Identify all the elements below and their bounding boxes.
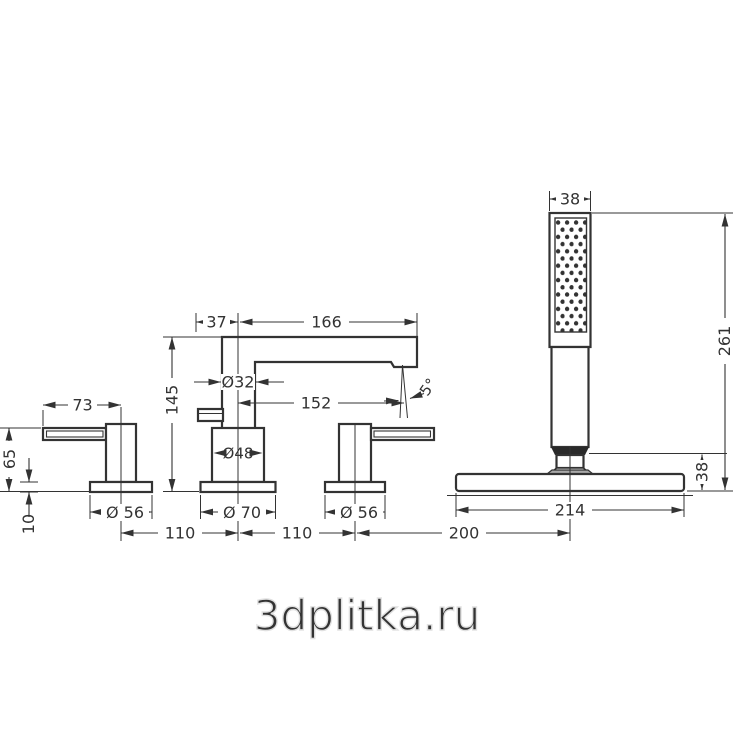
shower-handle	[552, 347, 589, 447]
bath-mixer-drawing: 73 65 10 Ø 56 37 166 Ø32 152 5° 145 Ø48 …	[0, 0, 734, 734]
watermark-text: 3dplitka.ru	[254, 591, 480, 640]
spout	[198, 337, 417, 492]
dim-label-spout-body-diameter: Ø48	[223, 444, 254, 462]
shower-spray-face	[555, 218, 587, 332]
right-handle	[325, 424, 434, 492]
dim-label-shower-head-width: 38	[560, 190, 580, 209]
dim-label-spacing-middle: 110	[282, 524, 313, 543]
dim-label-aerator-reach: 152	[301, 394, 332, 413]
dim-label-right-escutcheon-diameter: Ø 56	[340, 503, 378, 522]
spray-line-angled	[403, 365, 408, 418]
right-handle-lever-inner	[374, 431, 431, 437]
dim-label-left-escutcheon-diameter: Ø 56	[106, 503, 144, 522]
dim-label-spout-height: 145	[163, 385, 182, 416]
dim-label-spacing-left: 110	[165, 524, 196, 543]
dim-label-spout-back-offset: 37	[206, 313, 226, 332]
dim-label-spacing-shower: 200	[449, 524, 480, 543]
dim-label-escutcheon-height: 10	[19, 514, 38, 534]
dim-label-shower-total-height: 261	[715, 326, 734, 357]
dim-label-shower-holder-height: 38	[693, 462, 712, 482]
technical-drawing-page: 73 65 10 Ø 56 37 166 Ø32 152 5° 145 Ø48 …	[0, 0, 734, 734]
spray-line-vertical	[400, 365, 403, 418]
dim-5deg-left-arrow	[384, 401, 399, 402]
dim-label-spout-reach: 166	[311, 313, 342, 332]
left-handle	[43, 424, 152, 492]
dim-label-spout-pipe-diameter: Ø32	[222, 373, 255, 392]
dim-label-lever-length: 73	[72, 396, 92, 415]
dim-label-handle-height: 65	[0, 449, 19, 469]
dim-label-spout-escutcheon-diameter: Ø 70	[223, 503, 261, 522]
left-handle-lever-inner	[47, 431, 104, 437]
dim-label-shower-plate-width: 214	[555, 501, 586, 520]
spout-inlet-tab	[198, 409, 223, 421]
